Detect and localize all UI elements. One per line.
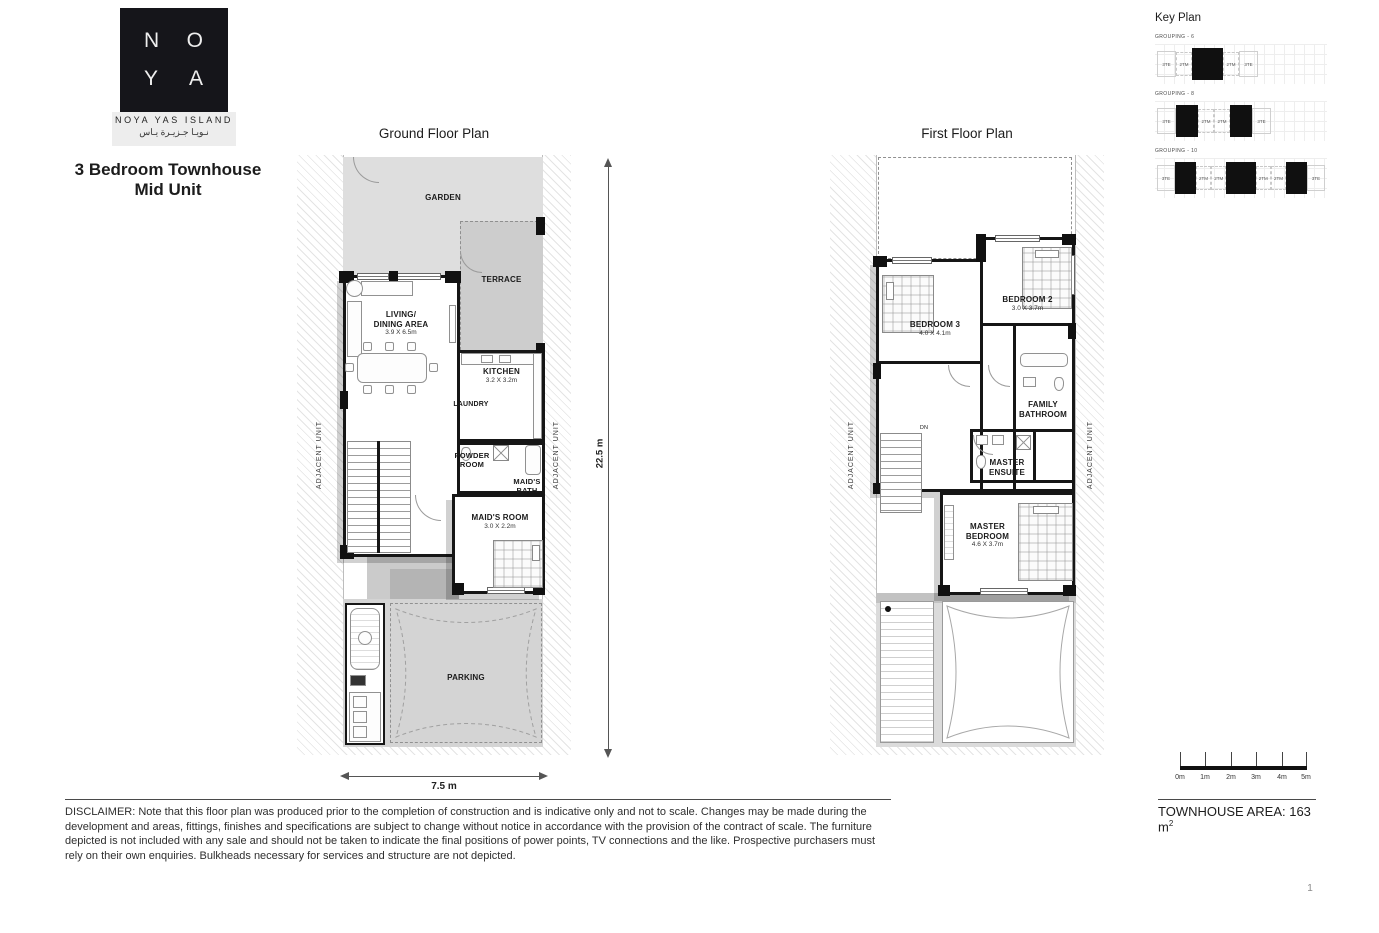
ensuite-basin xyxy=(976,435,988,445)
maids-bath-label: MAID'S BATH xyxy=(497,477,557,495)
wall-pier xyxy=(873,363,881,379)
side-table xyxy=(346,280,363,297)
ground-floor-plan-title: Ground Floor Plan xyxy=(297,126,571,141)
wall-pier xyxy=(340,391,348,409)
adjacent-unit-label-left: ADJACENT UNIT xyxy=(848,411,858,499)
townhouse-area-label: TOWNHOUSE AREA: 163 m2 xyxy=(1158,804,1318,834)
family-toilet xyxy=(1054,377,1064,391)
wall-pier xyxy=(1068,323,1076,339)
dimension-arrow-left xyxy=(340,772,349,780)
key-plan-grouping-row: 3TE2TM2TM3TE xyxy=(1155,44,1327,84)
adjacent-unit-label-right: ADJACENT UNIT xyxy=(1087,411,1097,499)
key-plan-grouping-label: GROUPING - 6 xyxy=(1155,34,1327,40)
wall-pier xyxy=(452,583,464,595)
maids-bathtub xyxy=(525,445,541,475)
scale-label-3m: 3m xyxy=(1246,774,1266,781)
dining-chair xyxy=(385,342,394,351)
key-plan-unit: 3TE xyxy=(1252,108,1271,134)
ensuite-bottom-wall xyxy=(970,480,1075,483)
horizontal-dimension-line xyxy=(347,776,541,777)
dining-chair xyxy=(345,363,354,372)
first-floor-plan: BEDROOM 3 4.0 X 4.1m BEDROOM 2 3.0 X 3.7… xyxy=(830,155,1104,755)
terrace-area xyxy=(460,221,543,355)
ac-unit xyxy=(353,711,367,723)
canopy-roof-curves xyxy=(942,601,1074,743)
dimension-arrow-up xyxy=(604,158,612,167)
ensuite-shower xyxy=(1016,435,1031,450)
kitchen-label: KITCHEN 3.2 X 3.2m xyxy=(460,367,543,384)
maids-room-window xyxy=(487,587,525,594)
bedroom3-window xyxy=(892,257,932,264)
key-plan-unit-highlighted xyxy=(1175,162,1196,194)
key-plan-unit: 3TE xyxy=(1157,51,1176,77)
dining-chair xyxy=(429,363,438,372)
logo-name: NOYA YAS ISLAND xyxy=(112,115,236,125)
key-plan-grouping-label: GROUPING - 8 xyxy=(1155,91,1327,97)
dining-chair xyxy=(407,342,416,351)
key-plan-unit-highlighted xyxy=(1230,105,1252,137)
wall-pier xyxy=(389,271,398,281)
bedroom3-label: BEDROOM 3 4.0 X 4.1m xyxy=(885,320,985,337)
adjacent-unit-label-left: ADJACENT UNIT xyxy=(316,411,326,499)
logo-letter-n: N xyxy=(144,29,160,53)
scale-label-5m: 5m xyxy=(1296,774,1316,781)
key-plan-grouping-row: 3TE2TM2TM3TE xyxy=(1155,101,1327,141)
family-basin xyxy=(1023,377,1036,387)
key-plan-title: Key Plan xyxy=(1155,12,1327,24)
key-plan-unit: 3TE xyxy=(1157,165,1175,191)
first-floor-plan-title: First Floor Plan xyxy=(830,126,1104,141)
living-window-2 xyxy=(397,273,441,280)
scale-label-1m: 1m xyxy=(1195,774,1215,781)
vertical-dimension-label: 22.5 m xyxy=(595,424,606,484)
first-staircase xyxy=(880,433,922,513)
ac-unit xyxy=(353,696,367,708)
garden-label: GARDEN xyxy=(343,193,543,203)
page-title: 3 Bedroom Townhouse Mid Unit xyxy=(62,160,274,201)
floor-plan-page: NO YA NOYA YAS ISLAND نـويـا جـزيـرة يـا… xyxy=(0,0,1379,933)
ground-floor-plan: GARDEN TERRACE LIVING/ DINING AREA 3.9 X… xyxy=(297,155,571,755)
dining-chair xyxy=(385,385,394,394)
wall-pier xyxy=(1062,234,1076,245)
porch-shadow xyxy=(390,569,459,603)
pergola-roof xyxy=(880,601,934,743)
scale-label-2m: 2m xyxy=(1221,774,1241,781)
pump-unit xyxy=(350,675,366,686)
dining-chair xyxy=(363,385,372,394)
disclaimer-text: DISCLAIMER: Note that this floor plan wa… xyxy=(65,805,891,864)
scale-label-4m: 4m xyxy=(1272,774,1292,781)
key-plan-grouping-label: GROUPING - 10 xyxy=(1155,148,1327,154)
key-plan-grouping-row: 3TE2TM2TM2TM2TM3TE xyxy=(1155,158,1327,198)
logo-band: NOYA YAS ISLAND نـويـا جـزيـرة يـاس xyxy=(112,112,236,146)
wall-pier xyxy=(938,585,950,596)
wall-pier xyxy=(976,234,986,262)
disclaimer-rule xyxy=(65,799,891,800)
key-plan-unit-highlighted xyxy=(1192,48,1223,80)
key-plan-unit: 2TM xyxy=(1211,166,1226,190)
key-plan-unit: 2TM xyxy=(1214,109,1230,133)
roof-drain xyxy=(885,606,891,612)
terrace-label: TERRACE xyxy=(460,275,543,285)
ensuite-top-wall xyxy=(970,429,1075,432)
terrace-pier xyxy=(536,217,545,235)
dimension-arrow-right xyxy=(539,772,548,780)
key-plan-unit: 3TE xyxy=(1239,51,1258,77)
stair-stringer-wall xyxy=(377,441,380,553)
master-window xyxy=(980,588,1028,595)
bedroom3-wall xyxy=(876,361,983,364)
key-plan: Key Plan GROUPING - 63TE2TM2TM3TEGROUPIN… xyxy=(1155,12,1327,198)
horizontal-dimension-label: 7.5 m xyxy=(394,781,494,792)
page-title-line1: 3 Bedroom Townhouse xyxy=(62,160,274,180)
kitchen-counter-side xyxy=(533,353,542,439)
key-plan-unit: 2TM xyxy=(1223,52,1239,76)
scale-bar-rule xyxy=(1180,766,1307,770)
water-tank-cap xyxy=(358,631,372,645)
living-window-1 xyxy=(357,273,389,280)
logo-letter-y: Y xyxy=(144,67,159,91)
dining-table xyxy=(357,353,427,383)
ac-unit xyxy=(353,726,367,738)
scale-bar: 0m 1m 2m 3m 4m 5m xyxy=(1180,752,1307,794)
family-bathroom-label: FAMILY BATHROOM xyxy=(1008,400,1078,419)
noya-logo: NO YA xyxy=(120,8,228,112)
key-plan-unit: 2TM xyxy=(1196,166,1211,190)
parking-label: PARKING xyxy=(390,673,542,683)
logo-arabic-name: نـويـا جـزيـرة يـاس xyxy=(112,127,236,138)
adjacent-unit-label-right: ADJACENT UNIT xyxy=(553,411,563,499)
laundry-label: LAUNDRY xyxy=(436,401,506,409)
dimension-arrow-down xyxy=(604,749,612,758)
master-bedroom-label: MASTER BEDROOM 4.6 X 3.7m xyxy=(940,522,1035,549)
key-plan-unit-highlighted xyxy=(1226,162,1255,194)
wall-pier xyxy=(1063,585,1076,596)
key-plan-unit: 2TM xyxy=(1198,109,1214,133)
page-number: 1 xyxy=(1300,883,1320,894)
kitchen-sink xyxy=(499,355,511,363)
stair-dn-label: DN xyxy=(914,425,934,432)
key-plan-unit: 3TE xyxy=(1307,165,1325,191)
bedroom2-label: BEDROOM 2 3.0 X 3.7m xyxy=(980,295,1075,312)
logo-letter-o: O xyxy=(187,29,204,53)
dining-chair xyxy=(407,385,416,394)
key-plan-unit-highlighted xyxy=(1176,105,1198,137)
bedroom2-window xyxy=(995,235,1040,242)
key-plan-unit: 2TM xyxy=(1271,166,1286,190)
wall-pier xyxy=(873,256,887,267)
page-title-line2: Mid Unit xyxy=(62,180,274,200)
logo-letter-a: A xyxy=(189,67,204,91)
powder-room-label: POWDER ROOM xyxy=(437,451,507,469)
key-plan-unit: 2TM xyxy=(1176,52,1192,76)
living-dining-label: LIVING/ DINING AREA 3.9 X 6.5m xyxy=(341,310,461,337)
key-plan-groupings: GROUPING - 63TE2TM2TM3TEGROUPING - 83TE2… xyxy=(1155,34,1327,198)
ensuite-basin xyxy=(992,435,1004,445)
sofa xyxy=(361,281,413,296)
vertical-dimension-line xyxy=(608,166,609,750)
dining-chair xyxy=(363,342,372,351)
bedroom2-wall xyxy=(980,323,1075,326)
kitchen-sink xyxy=(481,355,493,363)
key-plan-unit: 2TM xyxy=(1256,166,1271,190)
wall-pier xyxy=(445,271,461,283)
family-bathtub xyxy=(1020,353,1068,367)
maids-bed xyxy=(493,540,543,588)
key-plan-unit-highlighted xyxy=(1286,162,1307,194)
area-rule xyxy=(1158,799,1316,800)
maids-room-label: MAID'S ROOM 3.0 X 2.2m xyxy=(455,513,545,530)
scale-label-0m: 0m xyxy=(1170,774,1190,781)
master-ensuite-label: MASTER ENSUITE xyxy=(967,458,1047,477)
key-plan-unit: 3TE xyxy=(1157,108,1176,134)
